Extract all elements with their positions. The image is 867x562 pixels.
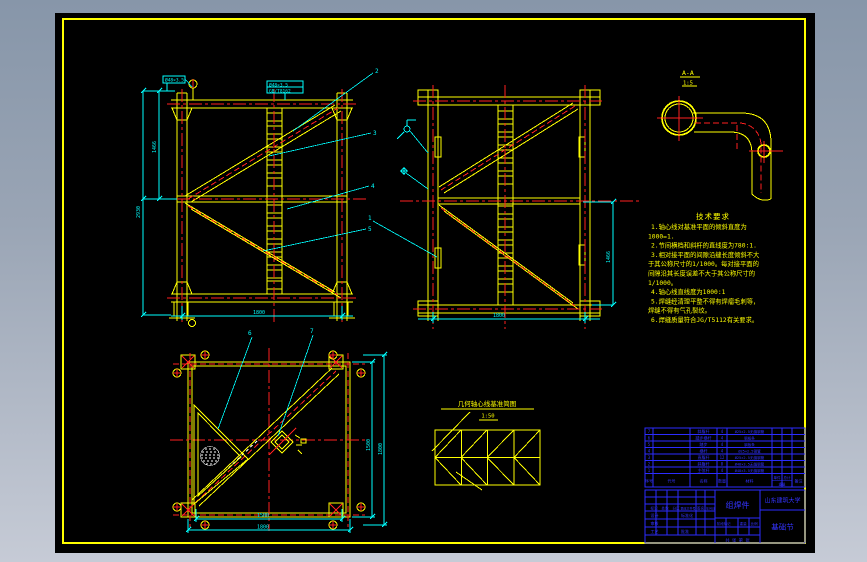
bom-cell: 1 — [648, 468, 651, 473]
dim-plan-right-inner: 1500 — [366, 439, 372, 451]
datum-target-icon — [400, 167, 428, 189]
bom-table: 序号 代号 名称 数量 材料 单件 总计 重量 备注 7 斜腹杆 4 Ø25×2… — [645, 428, 805, 487]
bom-cell: 钢板条 — [744, 442, 755, 447]
bom-cell: 3 — [648, 455, 651, 460]
bom-header-total: 总计 — [784, 475, 792, 480]
bom-cell: Ø48×3.5无缝钢管 — [735, 462, 765, 467]
tb-field: 处数 — [662, 506, 670, 511]
bom-cell: 4 — [721, 429, 724, 434]
tb-field: 标记 — [651, 506, 659, 511]
bom-header-single: 单件 — [774, 475, 782, 480]
bom-header-weight: 重量 — [779, 482, 787, 487]
bom-cell: 横杆 — [700, 448, 708, 454]
dim-side-width: 1800 — [493, 313, 505, 319]
bom-cell: 8 — [721, 462, 724, 467]
weld-symbol-icon — [397, 120, 428, 153]
bom-cell: 钢板条 — [744, 436, 755, 441]
note-line: 于其公称尺寸的1/1000。每对接平面的 — [648, 259, 759, 268]
bom-cell: 4 — [721, 468, 724, 473]
title-block-lower: 标记 处数 分区 更改文件号 签名 年月日 设计 标准化 审核 工艺 批准 阶段… — [645, 490, 805, 544]
callout-7: 7 — [310, 328, 314, 335]
bom-cell: 4 — [721, 442, 724, 447]
dim-front-width: 1800 — [253, 310, 265, 316]
bom-header-code: 代号 — [668, 478, 676, 484]
axis-schematic: 几何轴心线基准简图 1:50 — [432, 399, 540, 490]
bom-cell: 6 — [648, 436, 651, 441]
assembly-name: 组焊件 — [726, 500, 750, 510]
bom-header-no: 序号 — [645, 478, 653, 484]
bom-header-qty: 数量 — [718, 478, 726, 484]
bom-cell: 7 — [648, 429, 651, 434]
technical-notes: 技术要求 1.轴心线对基准平面的倾斜直度为 1000=1. 2.节间横档和斜杆的… — [648, 211, 760, 324]
note-line: 1.轴心线对基准平面的倾斜直度为 — [651, 222, 747, 231]
tb-field: 标准化 — [681, 512, 693, 518]
note-line: 5.焊缝经清理平整不得有焊瘤毛刺等， — [651, 296, 759, 305]
bom-cell: 12 — [720, 455, 725, 460]
bom-cell: 主弦杆 — [698, 467, 710, 473]
tb-field: 审核 — [651, 520, 659, 526]
schematic-title: 几何轴心线基准简图 — [458, 399, 517, 408]
dim-plan-right-outer: 1800 — [378, 443, 384, 455]
tb-field: 重量 — [740, 521, 748, 526]
note-line: 6.焊缝质量符合JG/T5112有关要求。 — [651, 315, 758, 324]
bom-cell: 4 — [721, 436, 724, 441]
callout-5: 5 — [368, 226, 372, 233]
tb-field: 工艺 — [651, 529, 659, 534]
tb-field: 比例 — [751, 521, 759, 526]
bom-cell: 2 — [648, 462, 651, 467]
bom-header-name: 名称 — [700, 478, 708, 484]
note-line: 3.相对接平面的间隙沿缝长度倾斜不大 — [651, 250, 760, 259]
bom-cell: 踏步 — [700, 441, 708, 447]
center-joint-detail — [269, 428, 306, 455]
dim-side-height: 1466 — [606, 251, 612, 263]
member-label-line2: GB/T8162 — [269, 88, 291, 94]
bom-cell: 斜腹杆 — [698, 461, 710, 467]
bom-cell: 4 — [648, 449, 651, 454]
callout-3: 3 — [373, 130, 377, 137]
drawing-name: 基础节 — [771, 522, 794, 532]
note-line: 1/1000。 — [648, 280, 677, 287]
bom-cell: Ø48×3.5无缝钢管 — [735, 468, 765, 473]
tb-field: 签名 — [697, 506, 705, 511]
pipe-section-detail: A-A 1:5 — [657, 69, 783, 200]
tb-sheets: 共 张 第 张 — [725, 537, 750, 544]
tb-field: 年月日 — [706, 506, 715, 511]
hatched-weld-area — [201, 447, 221, 466]
tb-field: 分区 — [673, 506, 681, 511]
bom-cell: Ø25×2.5钢管 — [738, 449, 761, 454]
section-title: A-A — [682, 69, 694, 77]
bom-cell: 4 — [721, 449, 724, 454]
bom-header-remark: 备注 — [795, 478, 803, 484]
bom-cell: 直腹杆 — [698, 454, 710, 460]
drawing-sheet: Ø48×3.5 Ø48×3.5 GB/T8162 2930 1466 2 3 4… — [55, 13, 815, 553]
sheet-frame — [63, 19, 805, 543]
cad-application-background: Ø48×3.5 Ø48×3.5 GB/T8162 2930 1466 2 3 4… — [0, 0, 867, 562]
note-line: 2.节间横档和斜杆的直线度为780:1. — [651, 241, 757, 250]
callout-4: 4 — [371, 183, 375, 190]
tb-field: 阶段标记 — [717, 521, 731, 526]
bom-header-material: 材料 — [746, 478, 754, 484]
callout-6: 6 — [248, 330, 252, 337]
callout-1: 1 — [368, 215, 372, 222]
notes-title: 技术要求 — [696, 211, 730, 221]
tb-field: 更改文件号 — [681, 506, 696, 511]
member-label-line1: Ø48×3.5 — [269, 81, 288, 88]
bom-cell: 踏步横杆 — [696, 435, 712, 441]
tb-field: 批准 — [681, 528, 689, 534]
dim-total-height: 2930 — [136, 206, 142, 218]
bom-cell: Ø25×2.5无缝钢管 — [735, 429, 765, 434]
note-line: 4.轴心线直线度为1000:1 — [651, 287, 726, 296]
tb-field: 设计 — [651, 512, 659, 518]
cad-canvas: Ø48×3.5 Ø48×3.5 GB/T8162 2930 1466 2 3 4… — [55, 13, 815, 553]
truss-side-view: 1 1466 1800 — [368, 85, 640, 329]
dim-half-height: 1466 — [152, 141, 158, 153]
bom-cell: 5 — [648, 442, 651, 447]
dim-plan-bottom-outer: 1800 — [257, 525, 269, 531]
dim-plan-bottom-inner: 1500 — [257, 513, 269, 519]
note-line: 1000=1. — [648, 233, 675, 240]
truss-front-view: Ø48×3.5 Ø48×3.5 GB/T8162 2930 1466 2 3 4… — [136, 68, 379, 327]
callout-2: 2 — [375, 68, 379, 75]
note-line: 焊缝不得有气孔裂纹。 — [648, 306, 711, 315]
pipe-spec-label: Ø48×3.5 — [165, 77, 184, 84]
plan-view: 6 7 1500 1800 1500 1800 — [170, 328, 387, 533]
bom-cell: Ø25×2.5无缝钢管 — [735, 455, 765, 460]
title-block: 序号 代号 名称 数量 材料 单件 总计 重量 备注 7 斜腹杆 4 Ø25×2… — [645, 428, 805, 544]
schematic-scale: 1:50 — [481, 414, 494, 420]
bom-cell: 斜腹杆 — [698, 428, 710, 434]
organization-name: 山东建筑大学 — [764, 497, 800, 505]
note-line: 间隙沿其长度误差不大于其公称尺寸的 — [648, 269, 755, 278]
